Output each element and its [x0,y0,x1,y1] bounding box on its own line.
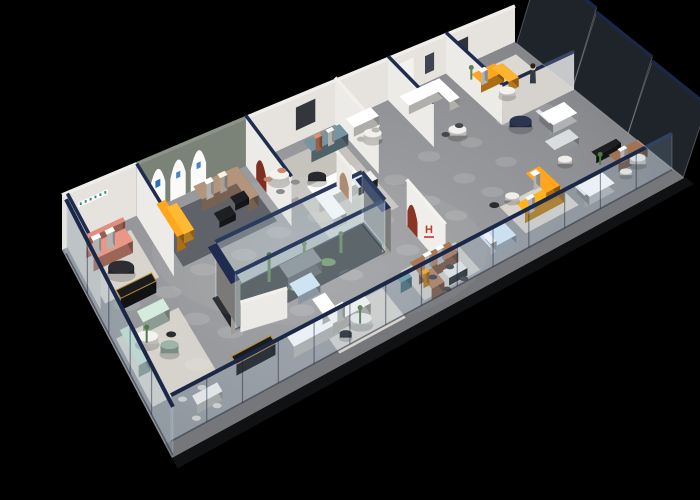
scene-root: H [62,0,700,468]
task-chair-yellow-lounge [489,202,499,208]
staff-figure [530,63,536,83]
floorplan-render: H [0,0,700,500]
spotlight [183,313,210,325]
dining-chair-room5-2 [455,123,463,128]
svg-text:H: H [425,224,433,236]
dining-chair-coral-2 [277,168,286,173]
dining-chair-coral-1 [264,177,273,182]
dining-chair-room4-2 [372,128,380,133]
h-brand-logo: H [424,224,434,238]
spotlight [453,173,475,183]
dining-chair-room5-1 [442,132,450,137]
side-table-yellow-lounge [504,192,520,205]
mint-armchair [159,340,179,359]
spotlight [185,358,212,371]
spotlight [481,187,503,197]
corner-room-table [498,87,516,102]
spotlight [495,157,517,167]
spotlight [418,151,441,161]
navy-round-ottoman [508,116,533,135]
dark-side-chair [166,331,176,337]
coffee-table-coral-room [107,260,136,282]
showroom-floorplan-image: H [0,0,700,500]
dining-chair-room4-1 [357,137,365,142]
coffee-table-mid [307,172,327,188]
dining-chair-gray-2 [291,179,300,184]
coffee-table-right-suite [557,156,573,169]
dining-chair-gray-1 [276,189,285,194]
